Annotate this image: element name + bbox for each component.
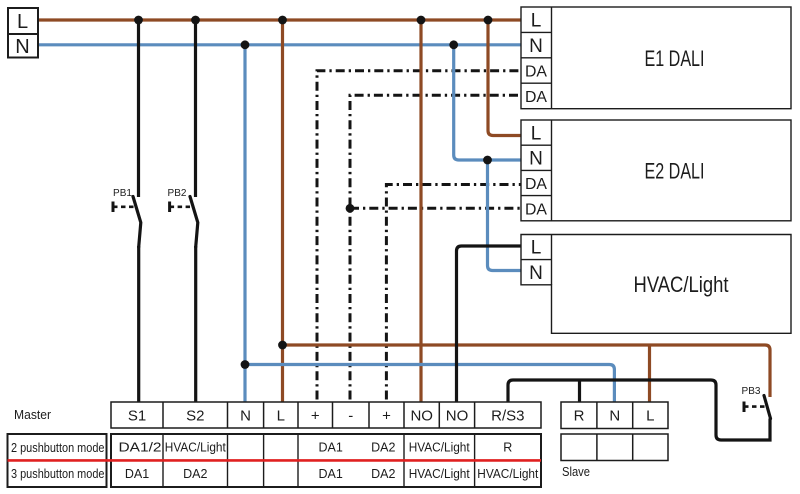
svg-text:+: +	[311, 408, 320, 425]
svg-text:S1: S1	[128, 408, 146, 425]
svg-text:NO: NO	[410, 408, 433, 425]
svg-text:N: N	[609, 408, 620, 425]
svg-text:HVAC/Light: HVAC/Light	[409, 467, 470, 481]
svg-text:DA2: DA2	[371, 441, 395, 455]
svg-text:HVAC/Light: HVAC/Light	[477, 467, 538, 481]
svg-text:R: R	[503, 441, 512, 455]
svg-text:Slave: Slave	[562, 464, 590, 479]
svg-text:HVAC/Light: HVAC/Light	[165, 441, 226, 455]
svg-text:R: R	[574, 408, 585, 425]
svg-text:L: L	[531, 11, 542, 32]
svg-text:-: -	[348, 408, 353, 425]
svg-text:N: N	[529, 149, 543, 170]
svg-text:E2 DALI: E2 DALI	[645, 159, 705, 184]
svg-text:DA1: DA1	[125, 467, 149, 481]
svg-text:N: N	[529, 36, 543, 57]
svg-text:DA: DA	[525, 176, 547, 193]
svg-text:L: L	[17, 11, 28, 33]
svg-text:PB3: PB3	[742, 386, 761, 397]
svg-text:DA1: DA1	[319, 441, 343, 455]
svg-text:+: +	[382, 408, 391, 425]
svg-text:L: L	[531, 123, 542, 144]
svg-text:N: N	[529, 263, 543, 284]
svg-text:PB2: PB2	[168, 188, 187, 199]
svg-text:3 pushbutton mode: 3 pushbutton mode	[11, 466, 105, 481]
svg-text:L: L	[646, 408, 654, 425]
svg-text:L: L	[531, 238, 542, 259]
svg-text:PB1: PB1	[113, 188, 132, 199]
svg-text:N: N	[240, 408, 251, 425]
svg-text:DA: DA	[525, 89, 547, 106]
svg-text:DA1: DA1	[319, 467, 343, 481]
svg-text:DA: DA	[525, 64, 547, 81]
svg-text:L: L	[277, 408, 285, 425]
svg-text:E1 DALI: E1 DALI	[645, 46, 705, 71]
svg-text:DA2: DA2	[183, 467, 207, 481]
svg-text:2 pushbutton mode: 2 pushbutton mode	[11, 440, 105, 455]
svg-text:N: N	[15, 36, 29, 58]
svg-text:NO: NO	[446, 408, 469, 425]
svg-text:Master: Master	[14, 407, 52, 422]
svg-text:HVAC/Light: HVAC/Light	[409, 441, 470, 455]
svg-text:DA2: DA2	[371, 467, 395, 481]
svg-text:HVAC/Light: HVAC/Light	[634, 272, 729, 297]
svg-text:R/S3: R/S3	[491, 408, 524, 425]
svg-text:DA: DA	[525, 201, 547, 218]
svg-text:DA1/2: DA1/2	[119, 441, 162, 455]
svg-text:S2: S2	[186, 408, 204, 425]
